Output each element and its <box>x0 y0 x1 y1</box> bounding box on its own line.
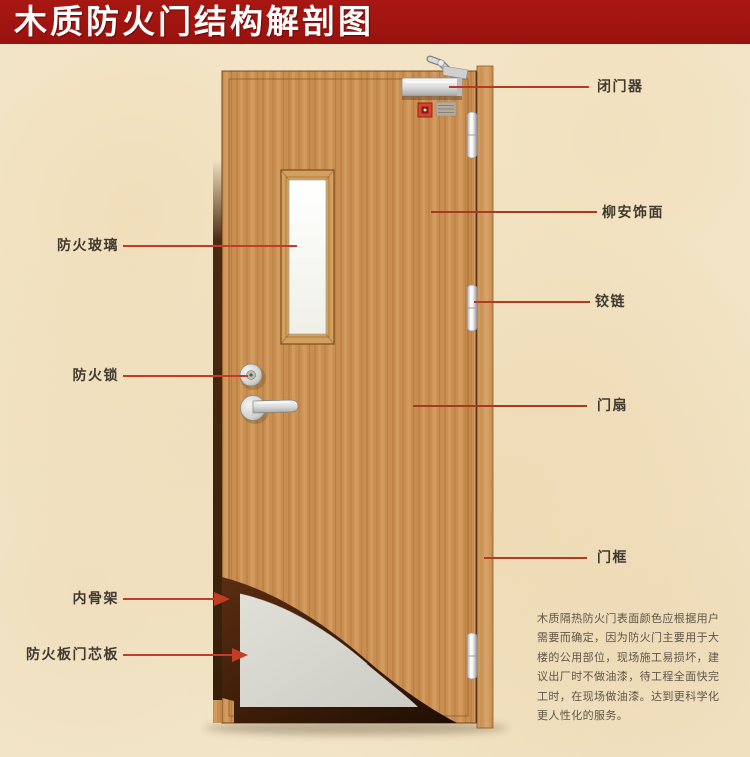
description-line: 木质隔热防火门表面颜色应根据用户 <box>537 609 719 628</box>
label-fire-board-core: 防火板门芯板 <box>26 645 119 665</box>
label-inner-skeleton: 内骨架 <box>73 589 120 609</box>
door-frame-strip <box>477 66 493 728</box>
label-door-leaf: 门扇 <box>597 396 628 416</box>
hinge-bottom <box>467 633 477 679</box>
door-closer <box>402 59 468 100</box>
door-left-edge <box>213 160 222 700</box>
hinge-middle <box>467 285 477 331</box>
fire-glass-window <box>281 170 334 344</box>
description-line: 更人性化的服务。 <box>537 706 719 725</box>
label-door-closer: 闭门器 <box>597 77 644 97</box>
label-hinge: 铰链 <box>595 292 626 312</box>
description-line: 议出厂时不做油漆，待工程全面快完 <box>537 667 719 686</box>
label-fire-glass: 防火玻璃 <box>57 236 119 256</box>
label-lauan-veneer: 柳安饰面 <box>602 203 664 223</box>
door-left-corner <box>213 700 222 723</box>
description-paragraph: 木质隔热防火门表面颜色应根据用户 需要而确定，因为防火门主要用于大 楼的公用部位… <box>537 609 719 725</box>
description-line: 楼的公用部位，现场施工易损坏，建 <box>537 648 719 667</box>
hinge-top <box>467 112 477 158</box>
description-line: 需要而确定，因为防火门主要用于大 <box>537 628 719 647</box>
fire-sign <box>418 103 432 117</box>
name-plate <box>436 102 456 116</box>
description-line: 工时，在现场做油漆。达到更科学化 <box>537 687 719 706</box>
label-fire-lock: 防火锁 <box>73 366 120 386</box>
label-door-frame: 门框 <box>597 548 628 568</box>
